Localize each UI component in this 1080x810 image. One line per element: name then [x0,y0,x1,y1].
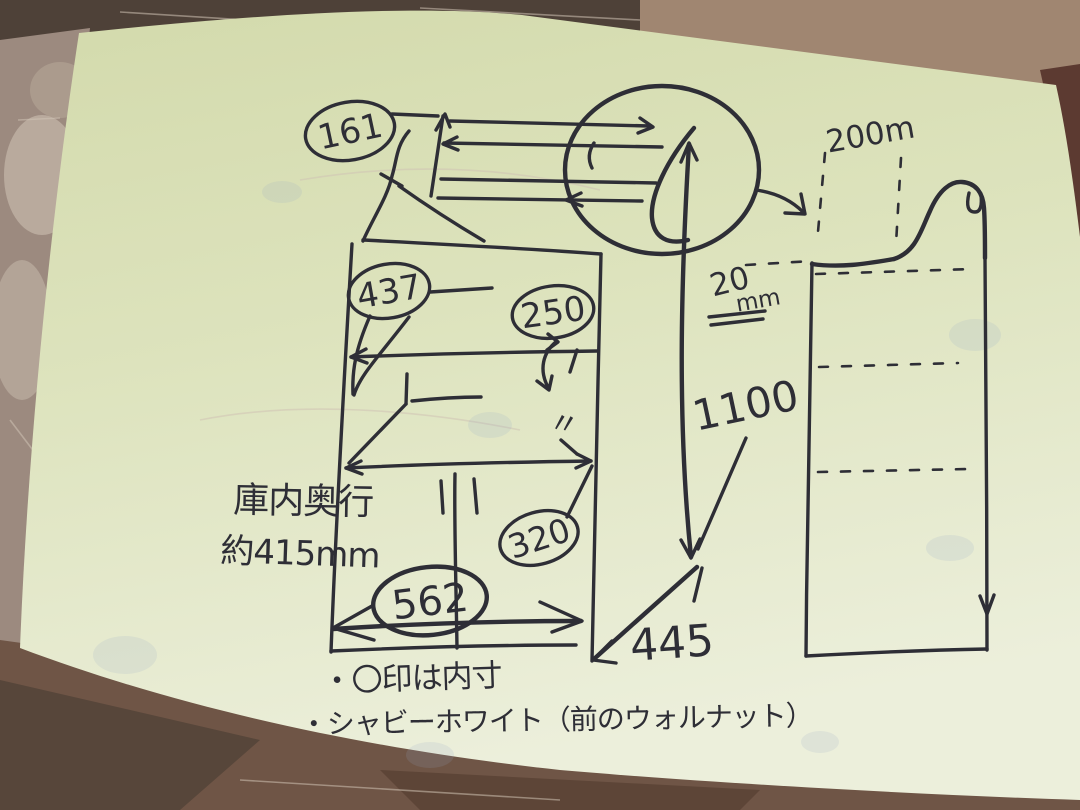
note-inner-dimensions: ・〇印は内寸 [321,658,502,700]
ditto-mark: 〃 [547,405,582,444]
photo-of-hand-drawn-sketch: 161 437 250 〃 320 562 1100 445 20 mm [0,0,1080,810]
paper-sheet [20,11,1080,800]
sketch-canvas: 161 437 250 〃 320 562 1100 445 20 mm [0,0,1080,810]
depth-note-label: 庫内奥行 [233,480,374,523]
dim-445-label: 445 [628,615,715,672]
dim-562-label: 562 [389,575,470,630]
depth-note-value: 約415mm [220,531,380,577]
